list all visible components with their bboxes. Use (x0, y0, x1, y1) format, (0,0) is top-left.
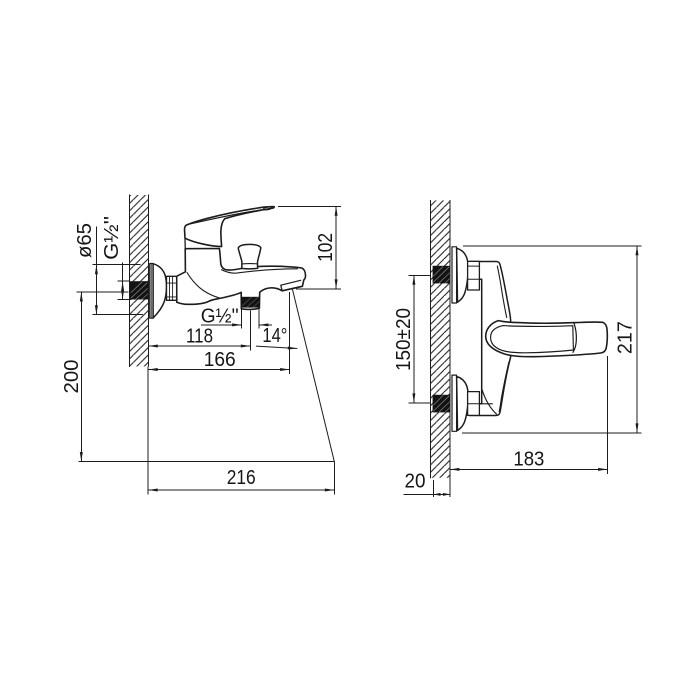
svg-text:14°: 14° (262, 325, 287, 347)
svg-text:G½'': G½'' (201, 306, 239, 328)
svg-text:150±20: 150±20 (393, 308, 415, 371)
svg-text:216: 216 (227, 467, 256, 489)
svg-text:118: 118 (186, 326, 213, 348)
svg-text:200: 200 (61, 360, 83, 394)
svg-text:20: 20 (405, 471, 426, 493)
svg-text:166: 166 (204, 349, 236, 371)
svg-text:G½'': G½'' (101, 216, 123, 260)
svg-text:217: 217 (615, 321, 637, 354)
svg-text:ø65: ø65 (74, 223, 96, 258)
svg-text:102: 102 (315, 233, 337, 262)
svg-text:183: 183 (513, 448, 544, 470)
